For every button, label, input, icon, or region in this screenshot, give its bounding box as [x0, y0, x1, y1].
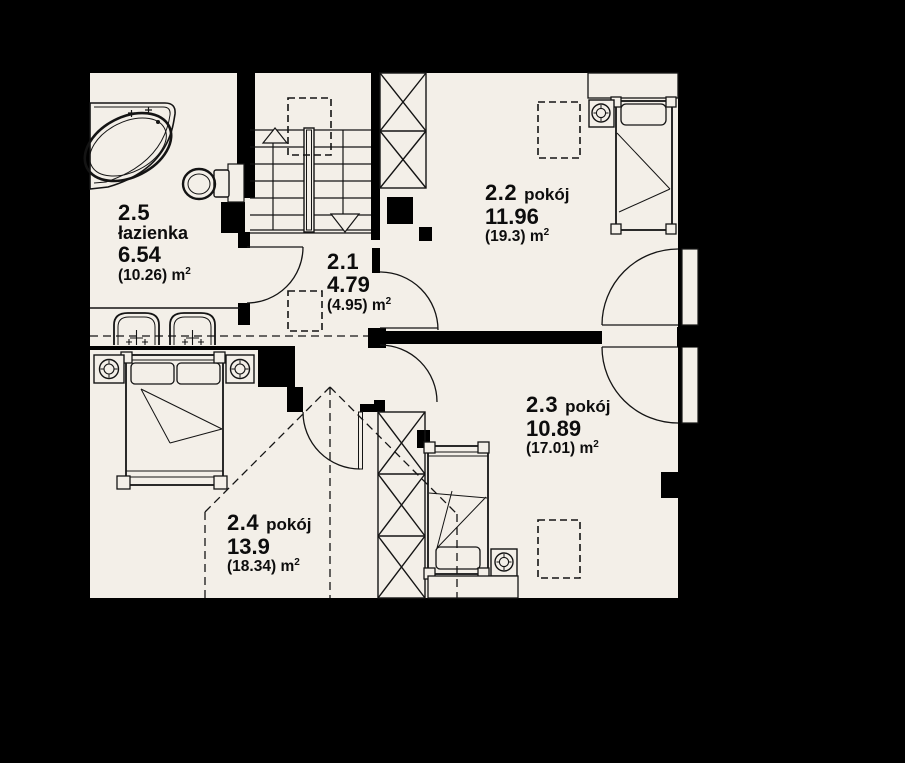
room-gross-area: (18.34) m2 — [227, 558, 311, 576]
nightstand-lamp-icon — [589, 100, 614, 127]
room-number: 2.4 — [227, 510, 259, 535]
room-label-2-1: 2.1 4.79 (4.95) m2 — [327, 250, 391, 314]
door-leaf-open — [682, 347, 698, 423]
room-gross-area: (17.01) m2 — [526, 440, 610, 458]
wardrobe-shelf-icon — [428, 576, 518, 598]
single-bed-icon — [611, 97, 676, 234]
room-label-2-5: 2.5 łazienka 6.54 (10.26) m2 — [118, 201, 191, 284]
room-label-2-4: 2.4pokój 13.9 (18.34) m2 — [227, 511, 311, 576]
room-name: pokój — [524, 185, 569, 204]
room-number: 2.1 — [327, 250, 391, 273]
wardrobe-shelf-icon — [588, 73, 678, 98]
room-label-2-3: 2.3pokój 10.89 (17.01) m2 — [526, 393, 610, 458]
room-number: 2.5 — [118, 201, 191, 224]
nightstand-lamp-icon — [226, 355, 254, 383]
room-gross-area: (4.95) m2 — [327, 297, 391, 315]
room-area: 13.9 — [227, 535, 311, 558]
room-area: 10.89 — [526, 417, 610, 440]
room-name: pokój — [266, 515, 311, 534]
floor-plan-page: 2.5 łazienka 6.54 (10.26) m2 2.1 4.79 (4… — [0, 0, 905, 763]
floor-plan-drawing — [0, 0, 905, 763]
room-label-2-2: 2.2pokój 11.96 (19.3) m2 — [485, 181, 569, 246]
nightstand-lamp-icon — [94, 355, 124, 383]
room-area: 4.79 — [327, 273, 391, 296]
room-name: łazienka — [118, 224, 191, 243]
room-gross-area: (19.3) m2 — [485, 228, 569, 246]
door-leaf-open — [682, 249, 698, 325]
room-number: 2.2 — [485, 180, 517, 205]
room-name: pokój — [565, 397, 610, 416]
room-number: 2.3 — [526, 392, 558, 417]
nightstand-lamp-icon — [491, 549, 517, 576]
room-area: 6.54 — [118, 243, 191, 266]
double-bed-icon — [117, 352, 227, 489]
room-area: 11.96 — [485, 205, 569, 228]
room-gross-area: (10.26) m2 — [118, 267, 191, 285]
